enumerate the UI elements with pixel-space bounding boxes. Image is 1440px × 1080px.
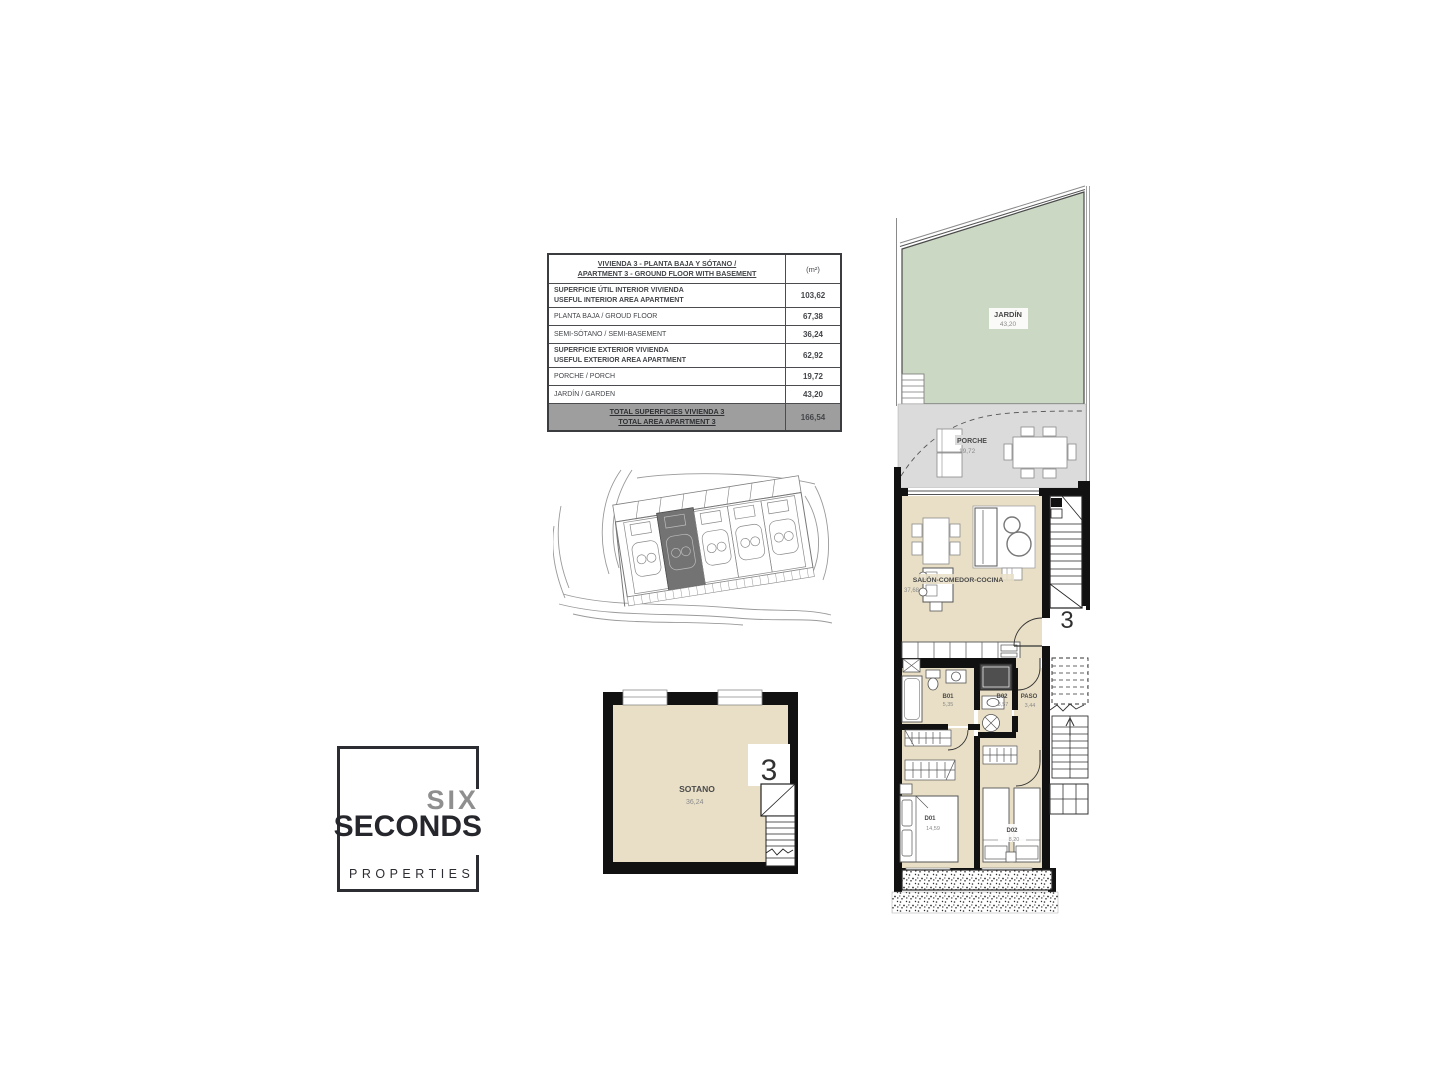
footer-value: 166,54: [785, 404, 840, 430]
wardrobe: [983, 746, 1017, 764]
row-label: JARDÍN / GARDEN: [549, 386, 785, 403]
basement-window: [718, 690, 762, 705]
nightstand: [900, 784, 912, 794]
basement-window: [623, 690, 667, 705]
area-table-footer: TOTAL SUPERFICIES VIVIENDA 3 TOTAL AREA …: [549, 403, 840, 430]
external-stairs-lower: [1050, 704, 1088, 778]
area-table-header: VIVIENDA 3 - PLANTA BAJA Y SÓTANO / APAR…: [549, 255, 840, 283]
internal-staircase: [1050, 496, 1082, 608]
unit-number: 3: [1060, 607, 1073, 634]
area-table-unit: (m²): [785, 255, 840, 283]
basement-room-label: SOTANO: [679, 784, 715, 794]
basement-floor-plan: 3 SOTANO 36,24: [598, 688, 803, 884]
row-value: 43,20: [785, 386, 840, 403]
bathroom2-label: B02: [996, 694, 1008, 700]
living-room-label: SALÓN-COMEDOR-COCINA: [913, 575, 1004, 584]
row-value: 62,92: [785, 344, 840, 367]
living-room-area-value: 37,68: [904, 588, 920, 594]
sliding-door: [908, 488, 1039, 496]
gravel-band: [892, 892, 1058, 913]
nightstand: [1006, 852, 1016, 862]
side-landing: [1050, 784, 1088, 814]
washing-machine: [903, 659, 920, 672]
bathtub: [902, 676, 922, 722]
six-seconds-logo: SIX SECONDS PROPERTIES: [337, 746, 479, 892]
brochure-page: VIVIENDA 3 - PLANTA BAJA Y SÓTANO / APAR…: [0, 0, 1440, 1080]
logo-seconds-text: SECONDS: [334, 812, 482, 842]
round-table: [1007, 532, 1031, 556]
row-label: PLANTA BAJA / GROUD FLOOR: [549, 308, 785, 325]
table-row: PORCHE / PORCH 19,72: [549, 367, 840, 385]
basement-unit-number: 3: [761, 754, 778, 787]
garden-area-value: 43,20: [1000, 321, 1017, 328]
bedroom1-area-value: 14,59: [926, 826, 940, 832]
site-plan-sketch: [553, 468, 833, 628]
table-row: SUPERFICIE EXTERIOR VIVIENDA USEFUL EXTE…: [549, 343, 840, 367]
row-value: 103,62: [785, 284, 840, 307]
row-label: PORCHE / PORCH: [549, 368, 785, 385]
ground-floor-plan: JARDÍN 43,20 PORCHE 19,72: [890, 180, 1095, 936]
wardrobe: [905, 760, 955, 780]
row-value: 67,38: [785, 308, 840, 325]
external-stairs-upper: [1052, 658, 1088, 704]
bedroom2-area-value: 8,20: [1009, 837, 1020, 843]
logo-properties-text: PROPERTIES: [349, 868, 474, 881]
basement-stairs: [761, 784, 795, 866]
footer-label: TOTAL SUPERFICIES VIVIENDA 3 TOTAL AREA …: [549, 404, 785, 430]
bathroom1-label: B01: [942, 694, 954, 700]
garden-label: JARDÍN: [994, 310, 1022, 319]
row-value: 36,24: [785, 326, 840, 343]
area-table-title: VIVIENDA 3 - PLANTA BAJA Y SÓTANO / APAR…: [549, 255, 785, 283]
hallway-label: PASO: [1021, 694, 1038, 700]
row-label: SEMI-SÓTANO / SEMI-BASEMENT: [549, 326, 785, 343]
gravel-band: [902, 870, 1052, 890]
sink: [946, 670, 966, 683]
porch-area-value: 19,72: [959, 448, 976, 455]
bathroom1-area-value: 5,35: [943, 702, 954, 708]
bedroom2-label: D02: [1006, 828, 1018, 834]
bedroom1-label: D01: [924, 816, 936, 822]
hallway-area-value: 3,44: [1025, 703, 1036, 709]
row-label: SUPERFICIE EXTERIOR VIVIENDA USEFUL EXTE…: [549, 344, 785, 367]
porch-label: PORCHE: [957, 438, 987, 445]
table-row: SEMI-SÓTANO / SEMI-BASEMENT 36,24: [549, 325, 840, 343]
toilet: [983, 715, 1000, 732]
row-value: 19,72: [785, 368, 840, 385]
wardrobe: [905, 730, 951, 746]
kitchen-counter: [902, 642, 1020, 659]
garden-steps: [902, 374, 924, 404]
basement-room-area: 36,24: [686, 799, 704, 806]
site-plots: [609, 476, 815, 607]
table-row: JARDÍN / GARDEN 43,20: [549, 385, 840, 403]
area-table: VIVIENDA 3 - PLANTA BAJA Y SÓTANO / APAR…: [547, 253, 842, 432]
table-row: PLANTA BAJA / GROUD FLOOR 67,38: [549, 307, 840, 325]
row-label: SUPERFICIE ÚTIL INTERIOR VIVIENDA USEFUL…: [549, 284, 785, 307]
bedroom-divider-wall: [974, 736, 980, 868]
shower: [980, 664, 1012, 690]
bathroom2-area-value: 3,57: [998, 702, 1009, 708]
table-row: SUPERFICIE ÚTIL INTERIOR VIVIENDA USEFUL…: [549, 283, 840, 307]
